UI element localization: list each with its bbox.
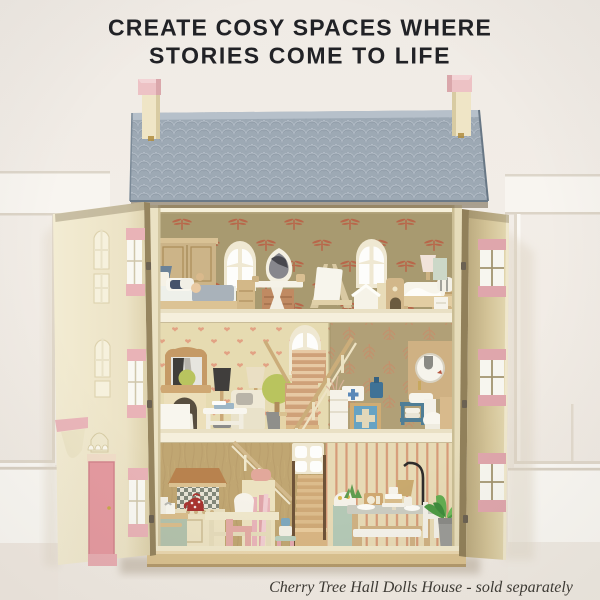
svg-text:STORIES COME TO LIFE: STORIES COME TO LIFE (149, 43, 451, 69)
svg-text:Cherry Tree Hall Dolls House -: Cherry Tree Hall Dolls House - sold sepa… (269, 579, 574, 596)
svg-text:CREATE COSY SPACES WHERE: CREATE COSY SPACES WHERE (108, 15, 492, 41)
